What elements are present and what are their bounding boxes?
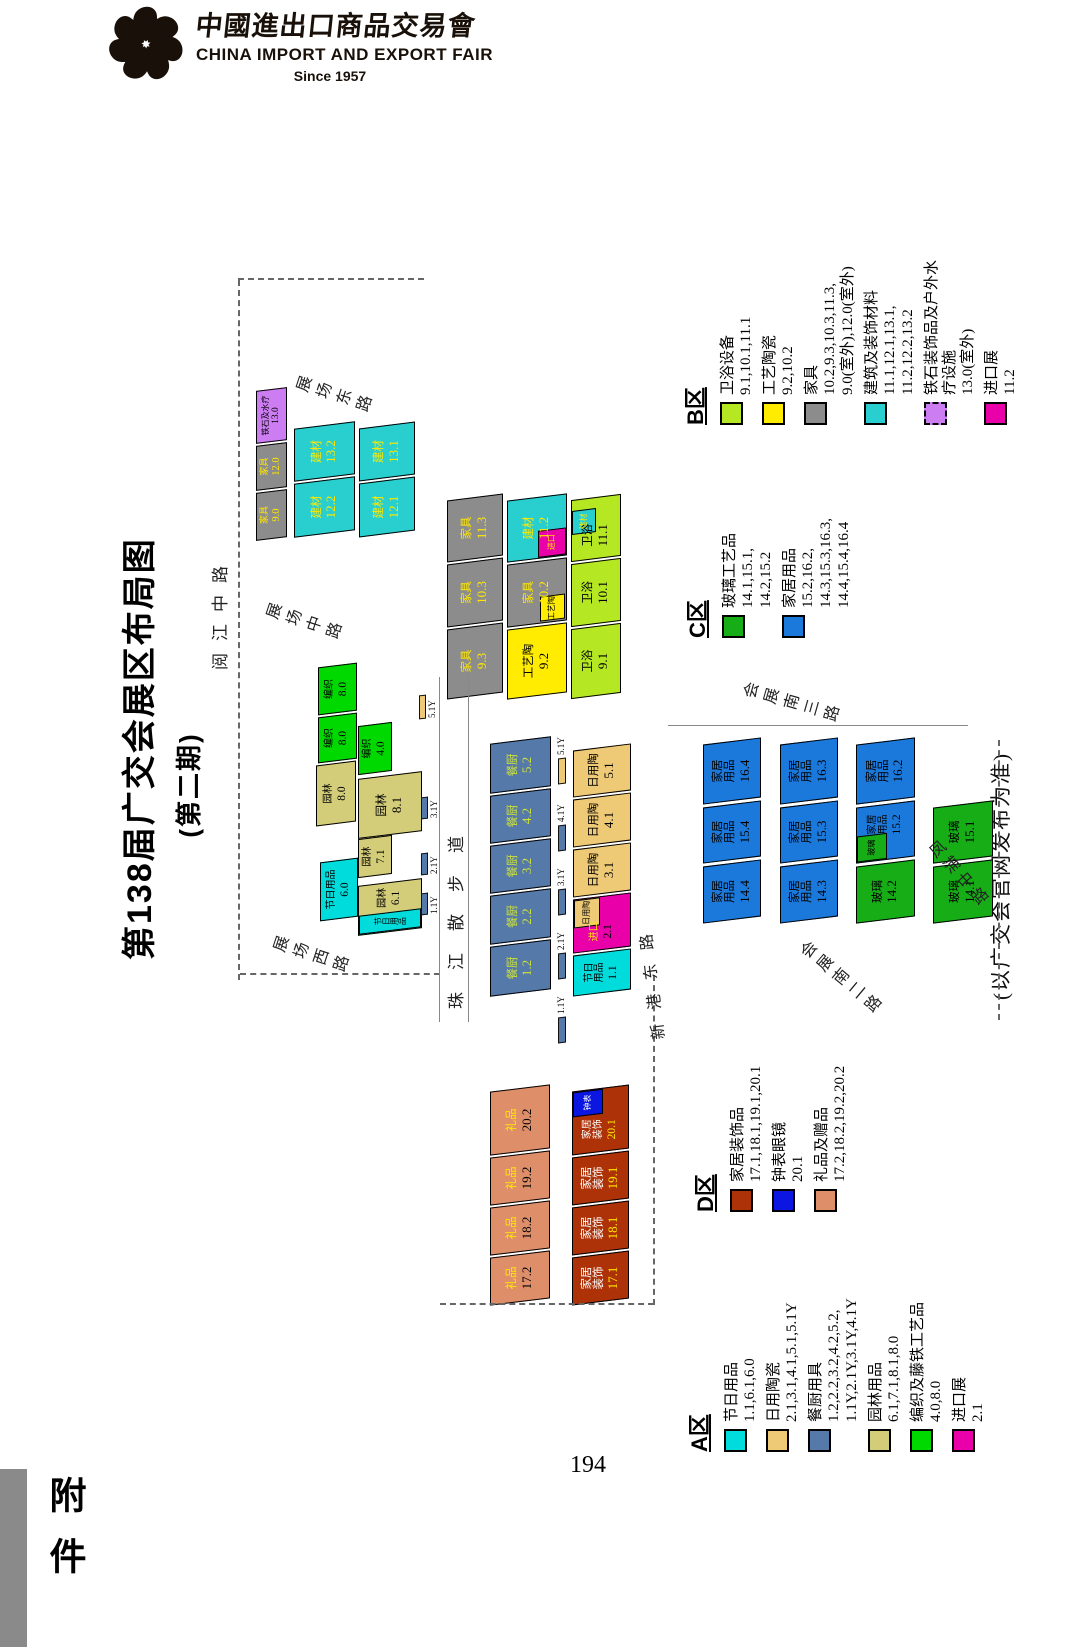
hall-number: 1.1: [607, 965, 619, 979]
hall-name: 家居用品: [789, 760, 814, 783]
legend-entry-numbers: 14.1,15.1,: [739, 533, 757, 608]
hall-number: 1.2: [520, 960, 534, 976]
hall-number: 4.0: [375, 741, 387, 755]
hall-name: 家具: [523, 581, 535, 604]
legend-entry-numbers: 15.2,16.2,: [799, 518, 817, 608]
hall-block-content: 铁石及水疗13.0: [257, 390, 286, 441]
legend-entry-name: 建筑及装饰材料: [863, 290, 881, 395]
hall-block: 家居用品16.4: [703, 737, 761, 804]
hall-block-content: 日用陶3.1: [574, 847, 630, 893]
hall-number: 8.0: [336, 786, 348, 800]
hall-block: 卫浴9.1: [571, 623, 621, 699]
hall-name: 家居装饰: [581, 1267, 606, 1290]
legend-entry: 日用陶瓷2.1,3.1,4.1,5.1,5.1Y: [765, 1237, 801, 1452]
hall-block: 编织8.0: [318, 663, 357, 716]
hall-block: 礼品20.2: [490, 1084, 550, 1155]
hall-name: 家居装饰: [581, 1167, 606, 1190]
hall-number: 13.0: [271, 407, 281, 424]
hall-number: 13.2: [324, 440, 338, 463]
legend-entry-name: 日用陶瓷: [765, 1302, 783, 1422]
hall-name: 家居装饰: [581, 1217, 606, 1240]
hall-block-content: 进口2.1: [574, 897, 630, 949]
hall-block-content: 家居用品16.4: [704, 742, 760, 800]
hall-name: 家具: [260, 458, 270, 476]
hall-block: 铁石及水疗13.0: [256, 387, 287, 444]
hall-block: 家居装饰18.1: [572, 1201, 629, 1256]
hall-block-content: 家居用品14.4: [704, 864, 760, 919]
legend-entry-numbers: 9.0(室外),12.0(室外): [839, 266, 857, 395]
boundary-dash: [238, 280, 240, 980]
annex-label: 3.1Y: [556, 868, 566, 886]
hall-block: 日用陶5.1: [573, 743, 631, 797]
boundary-dash: [440, 1303, 654, 1305]
annex-label: 5.1Y: [427, 700, 437, 718]
legend-swatch: [762, 402, 785, 425]
legend-swatch: [808, 1429, 831, 1452]
hall-number: 16.2: [891, 760, 905, 783]
boundary-dash: [998, 740, 1000, 1020]
hall-block: 家居用品15.4: [703, 800, 761, 863]
hall-block: 进口建材11.2: [507, 493, 567, 562]
hall-number: 4.1: [602, 812, 616, 828]
annex-hall: 2.1Y: [421, 853, 428, 875]
hall-number: 11.2: [537, 517, 551, 539]
hall-number: 3.2: [520, 858, 534, 874]
legend-entry: 园林用品6.1,7.1,8.1,8.0: [867, 1237, 903, 1452]
legend-entry-text: 日用陶瓷2.1,3.1,4.1,5.1,5.1Y: [765, 1302, 801, 1422]
hall-number: 9.3: [475, 653, 489, 669]
hall-block-content: 编织8.0: [319, 716, 356, 760]
legend-swatch: [910, 1429, 933, 1452]
legend-swatch: [772, 1189, 795, 1212]
hall-name: 家居用品: [789, 880, 814, 903]
annex-label: 5.1Y: [556, 737, 566, 755]
hall-block-content: 家居用品15.3: [781, 805, 837, 859]
hall-number: 8.0: [337, 731, 349, 745]
legend-entry-numbers: 20.1: [789, 1122, 807, 1182]
legend-title: B区: [678, 250, 710, 425]
hall-block: 家居装饰17.1: [572, 1251, 629, 1306]
brand-chinese-name: 中國進出口商品交易會: [194, 4, 466, 43]
legend-swatch: [924, 402, 947, 425]
hall-block: 餐厨4.2: [490, 788, 551, 843]
annex-bar: [419, 695, 426, 720]
hall-block-content: 节日用品1.1: [574, 953, 630, 992]
hall-block-content: 园林8.1: [359, 776, 421, 834]
legend-entry-name: 家具: [803, 266, 821, 395]
hall-number: 15.1: [963, 821, 977, 844]
hall-name: 园林: [376, 794, 388, 817]
legend-entry-numbers: 14.2,15.2: [757, 533, 775, 608]
legend-swatch: [984, 402, 1007, 425]
map-title-main: 第138届广交会展区布局图: [112, 610, 161, 960]
hall-block-content: 玻璃14.2: [857, 864, 914, 919]
hall-number: 16.3: [815, 760, 829, 783]
legend-entry-numbers: 11.2,12.2,13.2: [899, 290, 917, 395]
legend-entry-text: 家居装饰品17.1,18.1,19.1,20.1: [729, 1066, 765, 1182]
hall-block-content: 节日用品6.0: [321, 861, 357, 918]
hall-block: 建材13.1: [359, 422, 415, 482]
hall-block-content: 礼品19.2: [491, 1155, 549, 1201]
hall-number: 6.1: [390, 891, 402, 905]
hall-name: 编织: [363, 739, 374, 759]
legend-entry-text: 园林用品6.1,7.1,8.1,8.0: [867, 1336, 903, 1422]
hall-block-content: 建材13.1: [360, 426, 414, 477]
hall-name: 家具: [260, 506, 270, 524]
legend-entry-numbers: 1.1,6.1,6.0: [741, 1358, 759, 1422]
legend-entry-name: 家居装饰品: [729, 1066, 747, 1182]
hall-block: 家具9.0: [256, 489, 287, 541]
hall-name: 卫浴: [582, 581, 594, 604]
hall-block: 家具9.3: [447, 623, 503, 700]
hall-block: 玻璃家居用品15.2: [856, 800, 915, 863]
road-label: 珠江散步道: [442, 814, 467, 1009]
legend-entry: 钟表眼镜20.1: [771, 992, 807, 1212]
hall-number: 18.2: [520, 1217, 534, 1240]
hall-name: 日用陶: [588, 853, 600, 888]
annex-label: 3.1Y: [429, 800, 439, 818]
legend-entry: 工艺陶瓷9.2,10.2: [761, 250, 797, 425]
hall-number: 10.1: [596, 581, 610, 604]
legend-entry-text: 玻璃工艺品14.1,15.1,14.2,15.2: [721, 533, 775, 608]
hall-block: 礼品18.2: [490, 1200, 550, 1255]
annex-label: 1.1Y: [429, 896, 439, 914]
annex-bar: [421, 853, 428, 876]
legend-entry: 餐厨用具1.2,2.2,3.2,4.2,5.2,1.1Y,2.1Y,3.1Y,4…: [807, 1237, 861, 1452]
legend-entry-numbers: 14.3,15.3,16.3,: [817, 518, 835, 608]
legend-entry-name: 编织及藤铁工艺品: [909, 1302, 927, 1422]
hall-name: 礼品: [506, 1217, 518, 1240]
legend-entry-numbers: 13.0(室外): [959, 250, 977, 395]
hall-name: 日用陶: [588, 803, 600, 838]
hall-block-content: 家居用品14.3: [781, 864, 837, 919]
hall-number: 6.0: [339, 882, 351, 896]
annex-bar: [421, 893, 428, 916]
hall-number: 11.3: [475, 517, 489, 539]
hall-block-content: 家具12.0: [257, 445, 286, 488]
annex-hall: 1.1Y: [558, 1017, 566, 1043]
hall-name: 家居用品: [868, 814, 890, 834]
hall-block: 玻璃14.2: [856, 859, 915, 923]
hall-name: 编织: [325, 728, 336, 748]
legend-entry-text: 卫浴设备9.1,10.1,11.1: [719, 317, 755, 395]
legend-entry: 进口展2.1: [951, 1237, 987, 1452]
hall-block: 家具12.0: [256, 442, 287, 491]
hall-block: 园林8.0: [316, 761, 356, 827]
legend-entry-numbers: 4.0,8.0: [927, 1302, 945, 1422]
hall-name: 家居用品: [712, 821, 737, 844]
hall-block-content: 家居用品16.3: [781, 742, 837, 800]
legend-entry-name: 铁石装饰品及户外水疗设施: [923, 250, 959, 395]
legend-entry-numbers: 17.2,18.2,19.2,20.2: [831, 1066, 849, 1182]
legend-swatch: [804, 402, 827, 425]
legend-entry: 铁石装饰品及户外水疗设施13.0(室外): [923, 250, 977, 425]
legend-entry-text: 家居用品15.2,16.2,14.3,15.3,16.3,14.4,15.4,1…: [781, 518, 853, 608]
hall-number: 18.1: [606, 1217, 620, 1240]
legend-entry-text: 钟表眼镜20.1: [771, 1122, 807, 1182]
road-label: 新港东路: [631, 919, 669, 1041]
hall-block-content: 园林6.1: [359, 883, 421, 931]
hall-name: 卫浴: [582, 650, 594, 673]
hall-number: 2.1: [602, 924, 614, 938]
hall-number: 12.1: [387, 496, 401, 519]
legend-entry-name: 玻璃工艺品: [721, 533, 739, 608]
brand-english-name: CHINA IMPORT AND EXPORT FAIR: [196, 45, 464, 65]
hall-block-content: 编织8.0: [319, 666, 356, 712]
hall-number: 9.0: [271, 508, 282, 521]
hall-number: 14.3: [815, 880, 829, 903]
page-number: 194: [552, 1452, 624, 1479]
hall-name: 节日用品: [585, 963, 607, 983]
hall-block-content: 家居装饰18.1: [573, 1205, 628, 1251]
hall-name: 礼品: [506, 1109, 518, 1132]
canton-fair-flower-icon: [104, 2, 188, 86]
hall-block-content: 家具11.3: [448, 498, 502, 558]
hall-number: 20.2: [520, 1109, 534, 1132]
legend-title: D区: [688, 992, 720, 1212]
legend-entry: 家居装饰品17.1,18.1,19.1,20.1: [729, 992, 765, 1212]
hall-number: 17.1: [606, 1267, 620, 1290]
hall-block-content: 园林7.1: [359, 838, 391, 875]
legend-entry-name: 钟表眼镜: [771, 1122, 789, 1182]
hall-block: 节日用品1.1: [573, 948, 631, 996]
hall-name: 餐厨: [507, 905, 519, 928]
legend-entry-text: 进口展2.1: [951, 1377, 987, 1422]
hall-number: 13.1: [387, 440, 401, 463]
hall-block-content: 家具10.3: [448, 562, 502, 623]
legend-entry-numbers: 10.2,9.3,10.3,11.3,: [821, 266, 839, 395]
legend-entry-name: 进口展: [983, 350, 1001, 395]
hall-block: 家居用品14.3: [780, 859, 838, 923]
road-line: [439, 677, 440, 1022]
hall-number: 14.2: [885, 880, 899, 903]
hall-block: 园林7.1: [358, 835, 392, 878]
annex-hall: 3.1Y: [558, 889, 566, 915]
hall-block: 餐厨3.2: [490, 838, 551, 893]
hall-block-content: 卫浴9.1: [572, 627, 620, 695]
road-label: 展场东路: [291, 373, 378, 422]
hall-number: 16.4: [738, 760, 752, 783]
annex-hall: 2.1Y: [558, 953, 566, 979]
legend-swatch: [814, 1189, 837, 1212]
hall-name: 建材: [373, 496, 385, 519]
legend-entry-numbers: 2.1,3.1,4.1,5.1,5.1Y: [783, 1302, 801, 1422]
legend-swatch: [766, 1429, 789, 1452]
legend-entry: 家居用品15.2,16.2,14.3,15.3,16.3,14.4,15.4,1…: [781, 433, 853, 638]
hall-name: 建材: [373, 440, 385, 463]
hall-block: 家居用品16.3: [780, 737, 838, 804]
hall-name: 家具: [461, 650, 473, 673]
hall-number: 10.2: [537, 581, 551, 604]
hall-name: 家具: [461, 517, 473, 540]
legend-title: A区: [682, 1237, 714, 1452]
hall-number: 12.0: [271, 457, 282, 475]
legend-swatch: [722, 615, 745, 638]
road-label: 展场中路: [261, 600, 348, 649]
legend-entry-text: 铁石装饰品及户外水疗设施13.0(室外): [923, 250, 977, 395]
legend-entry: 建筑及装饰材料11.1,12.1,13.1,11.2,12.2,13.2: [863, 250, 917, 425]
hall-number: 20.1: [606, 1119, 618, 1139]
hall-block-content: 餐厨1.2: [491, 944, 550, 992]
hall-number: 17.2: [520, 1267, 534, 1290]
hall-block-content: 建材12.2: [295, 481, 354, 533]
brand-since: Since 1957: [196, 68, 464, 84]
hall-name: 家居用品: [712, 880, 737, 903]
legend-entry-text: 节日用品1.1,6.1,6.0: [723, 1358, 759, 1422]
legend-entry: 编织及藤铁工艺品4.0,8.0: [909, 1237, 945, 1452]
hall-block: 家居用品15.3: [780, 800, 838, 863]
hall-block-content: 餐厨4.2: [491, 793, 550, 839]
hall-block: 建材卫浴11.1: [571, 494, 621, 562]
hall-block: 日用陶进口2.1: [573, 892, 631, 953]
hall-name: 卫浴: [582, 524, 594, 547]
hall-name: 家居用品: [712, 760, 737, 783]
legend-entry-text: 进口展11.2: [983, 350, 1019, 395]
hall-block-content: 卫浴11.1: [572, 498, 620, 558]
hall-name: 编织: [325, 679, 336, 699]
hall-block-content: 卫浴10.1: [572, 562, 620, 623]
hall-block: 卫浴10.1: [571, 558, 621, 627]
annex-bar: [558, 758, 566, 785]
legend-swatch: [724, 1429, 747, 1452]
legend-entry-text: 工艺陶瓷9.2,10.2: [761, 335, 797, 395]
hall-block-content: 礼品17.2: [491, 1255, 549, 1301]
annex-bar: [558, 1017, 566, 1044]
annex-bar: [558, 825, 566, 852]
hall-block: 建材12.2: [294, 476, 355, 537]
legend-entry-text: 编织及藤铁工艺品4.0,8.0: [909, 1302, 945, 1422]
hall-block-content: 家居装饰20.1: [573, 1089, 628, 1151]
hall-block: 家居装饰19.1: [572, 1151, 629, 1206]
legend-entry-numbers: 11.2: [1001, 350, 1019, 395]
legend-entry-numbers: 1.1Y,2.1Y,3.1Y,4.1Y: [843, 1298, 861, 1422]
hall-block: 日用陶4.1: [573, 792, 631, 847]
hall-number: 7.1: [375, 849, 387, 863]
hall-block: 餐厨1.2: [490, 939, 551, 996]
hall-block: 日用陶3.1: [573, 842, 631, 897]
annex-label: 4.1Y: [556, 804, 566, 822]
legend-entry-name: 进口展: [951, 1377, 969, 1422]
hall-name: 工艺陶: [523, 644, 535, 679]
legend-entry-numbers: 6.1,7.1,8.1,8.0: [885, 1336, 903, 1422]
hall-name: 建材: [311, 440, 323, 463]
hall-number: 4.2: [520, 808, 534, 824]
legend-swatch: [730, 1189, 753, 1212]
hall-block: 餐厨5.2: [490, 736, 551, 793]
hall-block-content: 餐厨2.2: [491, 893, 550, 940]
hall-number: 10.3: [475, 581, 489, 604]
legend-entry-name: 工艺陶瓷: [761, 335, 779, 395]
annex-hall: 1.1Y: [421, 893, 428, 915]
legend-swatch: [720, 402, 743, 425]
hall-block-content: 工艺陶9.2: [508, 627, 566, 695]
map-title-sub: (第二期): [169, 610, 206, 960]
hall-block: 建材13.2: [294, 421, 355, 481]
hall-block: 家居用品16.2: [856, 737, 915, 804]
hall-name: 建材: [311, 496, 323, 519]
legend-entry-text: 家具10.2,9.3,10.3,11.3,9.0(室外),12.0(室外): [803, 266, 857, 395]
hall-block: 节日用品6.0: [320, 858, 358, 922]
legend-swatch: [868, 1429, 891, 1452]
legend-entry-name: 卫浴设备: [719, 317, 737, 395]
hall-block-content: 建材11.2: [508, 498, 566, 558]
hall-name: 餐厨: [507, 805, 519, 828]
legend-entry: 节日用品1.1,6.1,6.0: [723, 1237, 759, 1452]
legend-zone-a: A区节日用品1.1,6.1,6.0日用陶瓷2.1,3.1,4.1,5.1,5.1…: [682, 1237, 993, 1452]
hall-name: 园林: [324, 784, 335, 804]
legend-entry: 家具10.2,9.3,10.3,11.3,9.0(室外),12.0(室外): [803, 250, 857, 425]
hall-block: 礼品19.2: [490, 1150, 550, 1205]
annex-bar: [421, 797, 428, 820]
legend-entry-numbers: 14.4,15.4,16.4: [835, 518, 853, 608]
legend-title: C区: [680, 433, 712, 638]
brand: 中國進出口商品交易會 CHINA IMPORT AND EXPORT FAIR …: [196, 4, 464, 84]
hall-name: 礼品: [506, 1267, 518, 1290]
legend-zone-d: D区家居装饰品17.1,18.1,19.1,20.1钟表眼镜20.1礼品及赠品1…: [688, 992, 855, 1212]
hall-block-content: 餐厨5.2: [491, 741, 550, 789]
hall-block-content: 日用陶4.1: [574, 797, 630, 843]
hall-block: 家具10.3: [447, 558, 503, 628]
annex-label: 1.1Y: [556, 996, 566, 1014]
annex-hall: 5.1Y: [558, 758, 566, 784]
hall-name: 家居用品: [866, 760, 891, 783]
annex-hall: 4.1Y: [558, 825, 566, 851]
hall-block-content: 家居用品16.2: [857, 742, 914, 800]
legend-entry-text: 建筑及装饰材料11.1,12.1,13.1,11.2,12.2,13.2: [863, 290, 917, 395]
hall-name: 园林: [363, 847, 374, 867]
map-canvas: 第138届广交会展区布局图 (第二期) (以广交会官网发布为准) 家具9.0家具…: [90, 250, 1010, 1460]
hall-block-content: 餐厨3.2: [491, 843, 550, 889]
hall-block-content: 家具9.3: [448, 627, 502, 695]
hall-block-content: 家居装饰19.1: [573, 1155, 628, 1201]
hall-block: 工艺陶9.2: [507, 622, 567, 699]
legend-entry-text: 礼品及赠品17.2,18.2,19.2,20.2: [813, 1066, 849, 1182]
hall-block-content: 编织4.0: [359, 725, 391, 772]
hall-name: 园林: [378, 888, 389, 908]
annex-hall: 5.1Y: [419, 695, 426, 719]
hall-block-content: 礼品18.2: [491, 1205, 549, 1251]
hall-block: 建材12.1: [359, 477, 415, 538]
hall-number: 8.1: [390, 797, 404, 813]
hall-number: 15.3: [815, 821, 829, 844]
hall-name: 建材: [523, 517, 535, 540]
hall-name: 家居装饰: [583, 1119, 605, 1139]
annex-label: 2.1Y: [429, 856, 439, 874]
hall-name: 家具: [461, 581, 473, 604]
legend-entry: 进口展11.2: [983, 250, 1019, 425]
attachment-label: 附件: [36, 1476, 90, 1598]
legend-entry-name: 园林用品: [867, 1336, 885, 1422]
hall-block: 园林8.1: [358, 771, 422, 839]
hall-block: 家具11.3: [447, 494, 503, 563]
legend-entry-numbers: 9.1,10.1,11.1: [737, 317, 755, 395]
hall-block: 家居用品14.4: [703, 859, 761, 923]
road-line: [468, 677, 469, 1022]
hall-block-content: 家居用品15.4: [704, 805, 760, 859]
legend-zone-c: C区玻璃工艺品14.1,15.1,14.2,15.2家居用品15.2,16.2,…: [680, 433, 859, 638]
legend-entry-numbers: 2.1: [969, 1377, 987, 1422]
hall-name: 餐厨: [507, 957, 519, 980]
road-label: 会展南三路: [739, 679, 847, 731]
legend-entry-name: 家居用品: [781, 518, 799, 608]
legend-zone-b: B区卫浴设备9.1,10.1,11.1工艺陶瓷9.2,10.2家具10.2,9.…: [678, 250, 1025, 425]
legend-swatch: [864, 402, 887, 425]
hall-block-content: 家具9.0: [257, 492, 286, 538]
hall-block: 编织4.0: [358, 722, 392, 775]
hall-block-content: 建材13.2: [295, 426, 354, 477]
hall-block-content: 园林8.0: [317, 764, 355, 823]
hall-number: 9.2: [537, 653, 551, 669]
